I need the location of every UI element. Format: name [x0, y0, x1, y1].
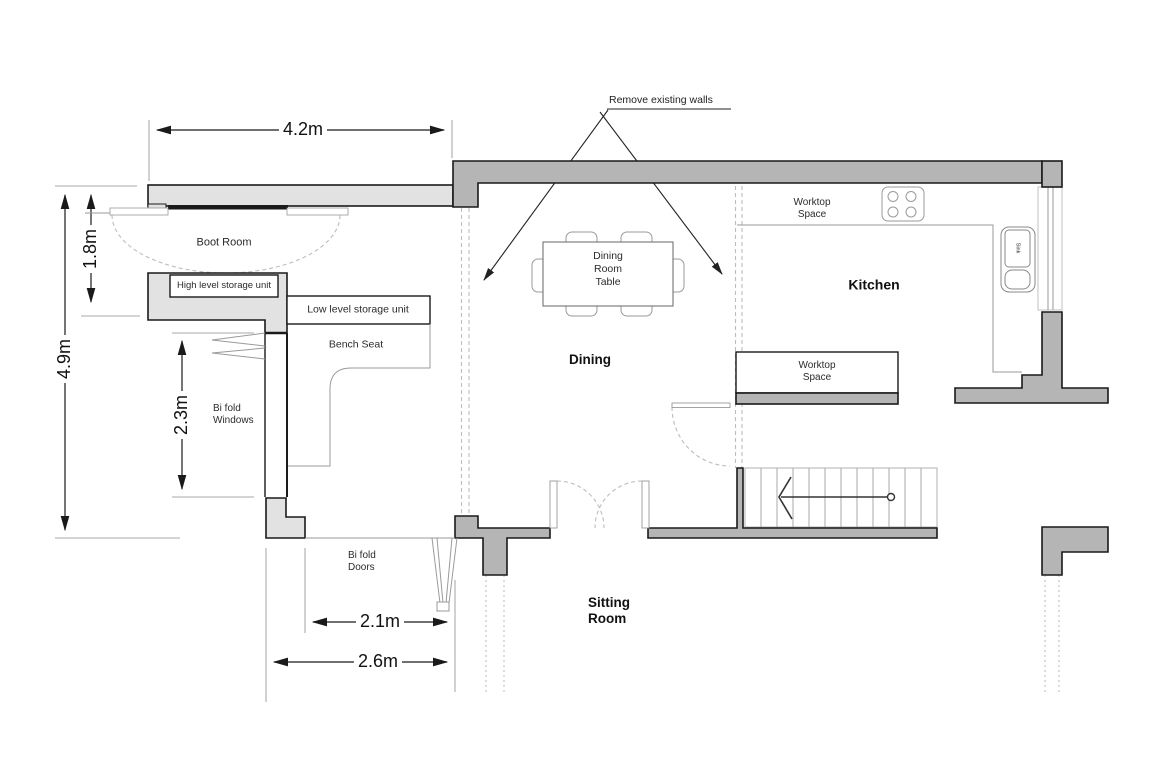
wall-top-boot-room [148, 185, 453, 206]
removed-wall-kitchen [736, 186, 743, 468]
room-boot-room: Boot Room [196, 236, 251, 249]
dim-bifold-opening-width: 2.6m [354, 651, 402, 673]
hall-door-leaf [672, 403, 730, 408]
stairs [745, 468, 937, 527]
kitchen-window-right [1038, 187, 1062, 310]
french-door-left-leaf [550, 481, 557, 528]
bifold-doors-symbol [432, 538, 457, 611]
wall-bottom-t [455, 516, 550, 575]
boot-window-opening [287, 208, 348, 215]
label-bench-seat: Bench Seat [329, 339, 383, 352]
french-door-right-leaf [642, 481, 649, 528]
label-sink: Sink [1014, 243, 1021, 254]
dim-left-total-height: 4.9m [54, 335, 76, 383]
label-bifold-windows: Bi fold Windows [213, 403, 254, 427]
label-worktop-top: Worktop Space [793, 197, 830, 221]
remove-walls-note: Remove existing walls [609, 94, 713, 107]
sink-unit [1001, 227, 1035, 292]
bifold-windows-symbol [212, 333, 265, 359]
label-bifold-doors: Bi fold Doors [348, 550, 376, 574]
french-door-right-arc [595, 481, 642, 528]
label-worktop-mid: Worktop Space [798, 360, 835, 384]
room-kitchen: Kitchen [848, 276, 899, 293]
label-low-storage: Low level storage unit [307, 304, 409, 317]
wall-corner-se [1042, 527, 1108, 575]
room-dining: Dining [569, 352, 611, 368]
label-high-storage: High level storage unit [177, 280, 271, 292]
french-doors [550, 481, 649, 528]
floor-plan: 4.2m 1.8m 4.9m 2.3m 2.1m 2.6m Remove exi… [0, 0, 1170, 780]
dim-top-width: 4.2m [279, 119, 327, 141]
dim-boot-room-depth: 1.8m [80, 225, 102, 273]
wall-top-main [453, 161, 1042, 207]
french-door-left-arc [557, 481, 604, 528]
removed-wall-dining-left [462, 208, 470, 516]
kitchen-worktop-top [737, 225, 1022, 372]
wall-top-right-block [1042, 161, 1062, 187]
wall-corner-sw [266, 498, 305, 538]
boot-door-opening [110, 208, 168, 215]
room-sitting-room: Sitting Room [588, 595, 630, 628]
dim-bifold-windows-height: 2.3m [171, 391, 193, 439]
wall-segment [168, 205, 288, 210]
dim-bifold-doors-width: 2.1m [356, 611, 404, 633]
wall-continuation-dotted-sitting [486, 575, 504, 692]
hall-door-arc [672, 407, 730, 466]
worktop-mid-wall [736, 393, 898, 404]
hob [882, 187, 924, 221]
wall-right-t [955, 312, 1108, 403]
wall-continuation-dotted-right [1045, 575, 1059, 692]
label-dining-table: Dining Room Table [593, 250, 623, 288]
